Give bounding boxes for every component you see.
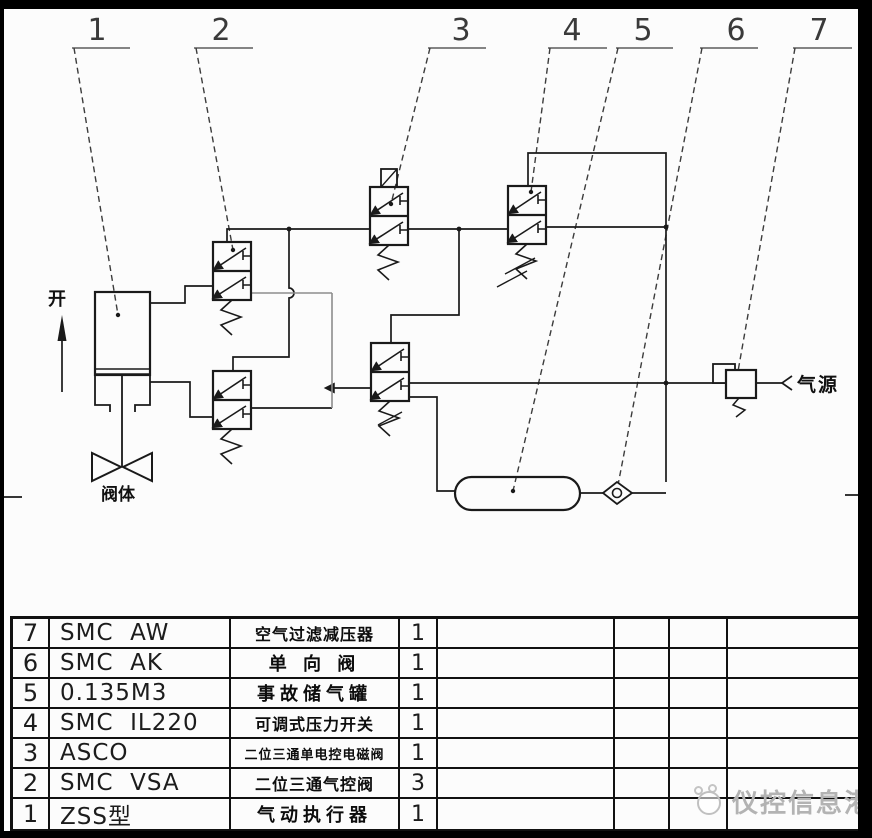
part-number-cell: 7 (13, 619, 50, 649)
watermark-logo-icon (694, 786, 726, 818)
pilot-valve-2c (371, 343, 409, 436)
pneumatic-schematic: 1 2 3 4 5 6 7 (0, 0, 872, 616)
leader-6 (618, 48, 702, 485)
part-name-cell: 单 向 阀 (231, 649, 400, 679)
part-qty-cell: 1 (400, 679, 438, 709)
empty-cell (438, 679, 615, 709)
part-model-cell: ZSS型 (50, 799, 231, 829)
part-model-cell: SMC IL220 (50, 709, 231, 739)
empty-cell (670, 619, 728, 649)
pneumatic-drawing-page: 1 2 3 4 5 6 7 (0, 0, 872, 838)
frame-bar-bottom (0, 831, 872, 838)
part-model-cell: 0.135M3 (50, 679, 231, 709)
open-label: 开 (48, 289, 66, 310)
empty-cell (615, 709, 670, 739)
part-model-cell: ASCO (50, 739, 231, 769)
part-name-cell: 事故储气罐 (231, 679, 400, 709)
air-tank (455, 477, 580, 510)
empty-cell (438, 769, 615, 799)
butterfly-valve-left (92, 453, 121, 481)
callout-6: 6 (726, 13, 745, 48)
part-model-cell: SMC VSA (50, 769, 231, 799)
part-qty-cell: 1 (400, 619, 438, 649)
part-name-cell: 二位三通单电控电磁阀 (231, 739, 400, 769)
pipe-junctions (287, 225, 669, 386)
empty-cell (615, 619, 670, 649)
part-qty-cell: 1 (400, 709, 438, 739)
part-model-cell: SMC AK (50, 649, 231, 679)
empty-cell (615, 769, 670, 799)
frame-bar-right (858, 0, 872, 838)
empty-cell (728, 739, 860, 769)
part-name-cell: 可调式压力开关 (231, 709, 400, 739)
open-direction-arrow (58, 315, 67, 392)
pressure-switch-4 (497, 186, 546, 287)
frame-bar-top (0, 0, 872, 9)
callout-5: 5 (633, 13, 652, 48)
frame-bar-left (0, 0, 4, 838)
adjustable-spring-arrow (497, 258, 535, 287)
part-name-cell: 气动执行器 (231, 799, 400, 829)
part-number-cell: 1 (13, 799, 50, 829)
leader-5 (513, 48, 618, 491)
part-name-cell: 空气过滤减压器 (231, 619, 400, 649)
callout-1: 1 (87, 13, 106, 48)
callout-7: 7 (809, 13, 828, 48)
part-model-cell: SMC AW (50, 619, 231, 649)
part-number-cell: 5 (13, 679, 50, 709)
pilot-valve-2b (213, 371, 251, 464)
empty-cell (438, 649, 615, 679)
empty-cell (615, 649, 670, 679)
part-qty-cell: 1 (400, 649, 438, 679)
part-qty-cell: 1 (400, 799, 438, 829)
empty-cell (615, 799, 670, 829)
part-number-cell: 3 (13, 739, 50, 769)
empty-cell (670, 709, 728, 739)
filter-regulator (713, 364, 756, 417)
empty-cell (615, 739, 670, 769)
empty-cell (728, 709, 860, 739)
empty-cell (728, 649, 860, 679)
empty-cell (728, 679, 860, 709)
part-number-cell: 6 (13, 649, 50, 679)
empty-cell (728, 619, 860, 649)
empty-cell (670, 679, 728, 709)
check-valve (603, 482, 632, 504)
valve-body-label: 阀体 (101, 484, 136, 505)
pipes (150, 153, 792, 493)
leader-1 (74, 48, 118, 315)
empty-cell (670, 739, 728, 769)
callout-4: 4 (562, 13, 581, 48)
callout-leaders (72, 48, 852, 493)
butterfly-valve-right (123, 453, 152, 481)
empty-cell (438, 799, 615, 829)
empty-cell (615, 679, 670, 709)
air-source-label: 气源 (796, 373, 839, 396)
watermark: 仪控信息港 (694, 783, 872, 820)
callout-numbers: 1 2 3 4 5 6 7 (87, 13, 828, 48)
solenoid-valve-3 (370, 169, 408, 280)
part-number-cell: 2 (13, 769, 50, 799)
part-qty-cell: 1 (400, 739, 438, 769)
leader-2 (196, 48, 233, 250)
pilot-pipes-gray (251, 293, 332, 408)
callout-2: 2 (211, 13, 230, 48)
callout-3: 3 (451, 13, 470, 48)
empty-cell (438, 619, 615, 649)
part-number-cell: 4 (13, 709, 50, 739)
part-name-cell: 二位三通气控阀 (231, 769, 400, 799)
leader-7 (737, 48, 795, 377)
pneumatic-actuator (92, 292, 152, 481)
empty-cell (670, 649, 728, 679)
pilot-valve-2a (213, 242, 251, 335)
watermark-text: 仪控信息港 (732, 783, 872, 820)
empty-cell (438, 739, 615, 769)
part-qty-cell: 3 (400, 769, 438, 799)
empty-cell (438, 709, 615, 739)
leader-4 (531, 48, 550, 192)
